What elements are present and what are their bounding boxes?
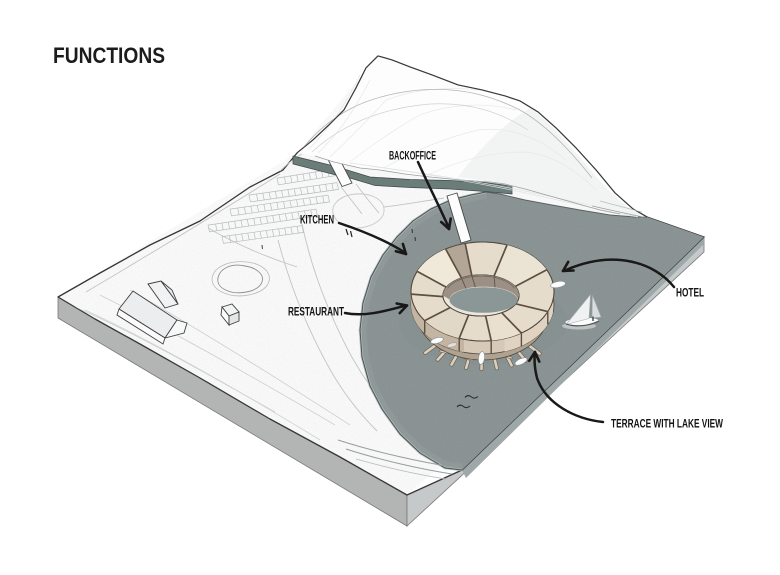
svg-text:BACKOFFICE: BACKOFFICE (389, 149, 436, 163)
svg-text:RESTAURANT: RESTAURANT (288, 305, 344, 319)
svg-text:KITCHEN: KITCHEN (300, 213, 334, 227)
svg-text:TERRACE WITH LAKE VIEW: TERRACE WITH LAKE VIEW (611, 417, 723, 431)
svg-text:FUNCTIONS: FUNCTIONS (53, 43, 165, 68)
svg-text:HOTEL: HOTEL (676, 286, 704, 300)
